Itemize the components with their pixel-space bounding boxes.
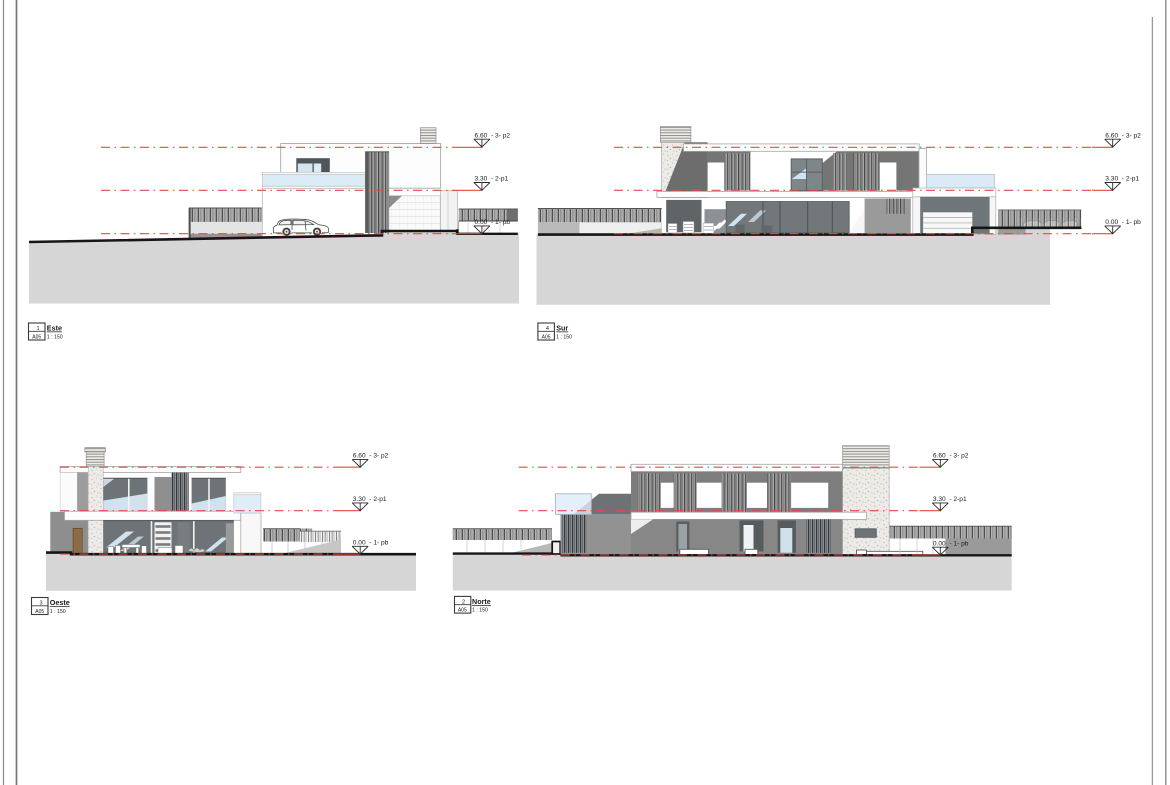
svg-text:A05: A05: [32, 335, 41, 341]
svg-text:0.00: 0.00: [933, 540, 946, 547]
svg-text:- 2-p1: - 2-p1: [1122, 176, 1140, 183]
svg-text:1 : 150: 1 : 150: [472, 608, 488, 614]
svg-text:3.30: 3.30: [475, 176, 488, 183]
svg-text:3.30: 3.30: [1105, 176, 1118, 183]
svg-text:0.00: 0.00: [1105, 219, 1118, 226]
svg-text:1: 1: [36, 326, 39, 332]
svg-text:2: 2: [462, 599, 465, 605]
svg-text:1 : 150: 1 : 150: [556, 335, 572, 341]
svg-text:Este: Este: [47, 324, 62, 333]
svg-text:6.60: 6.60: [933, 453, 946, 460]
svg-text:Sur: Sur: [556, 324, 568, 333]
svg-text:- 3- p2: - 3- p2: [369, 453, 388, 460]
svg-text:A05: A05: [35, 609, 44, 615]
svg-text:1 : 150: 1 : 150: [47, 335, 63, 341]
svg-text:- 1- pb: - 1- pb: [1122, 219, 1141, 226]
svg-text:A05: A05: [458, 608, 467, 614]
svg-text:Norte: Norte: [472, 597, 491, 606]
svg-text:4: 4: [546, 326, 549, 332]
svg-text:- 2-p1: - 2-p1: [949, 496, 967, 503]
svg-text:- 3- p2: - 3- p2: [949, 453, 968, 460]
svg-text:- 2-p1: - 2-p1: [369, 496, 387, 503]
svg-text:- 1- pb: - 1- pb: [491, 219, 510, 226]
svg-text:6.60: 6.60: [1105, 132, 1118, 139]
svg-text:- 3- p2: - 3- p2: [1122, 132, 1141, 139]
svg-text:3.30: 3.30: [933, 496, 946, 503]
svg-text:6.60: 6.60: [475, 132, 488, 139]
svg-text:- 2-p1: - 2-p1: [491, 176, 509, 183]
svg-text:3: 3: [39, 601, 42, 607]
svg-text:- 1- pb: - 1- pb: [369, 540, 388, 547]
svg-text:- 1- pb: - 1- pb: [949, 540, 968, 547]
svg-text:1 : 150: 1 : 150: [50, 609, 66, 615]
svg-text:6.60: 6.60: [353, 453, 366, 460]
svg-text:- 3- p2: - 3- p2: [491, 132, 510, 139]
svg-text:A05: A05: [542, 335, 551, 341]
svg-text:0.00: 0.00: [475, 219, 488, 226]
svg-text:0.00: 0.00: [353, 540, 366, 547]
svg-text:Oeste: Oeste: [50, 598, 70, 607]
svg-text:3.30: 3.30: [353, 496, 366, 503]
